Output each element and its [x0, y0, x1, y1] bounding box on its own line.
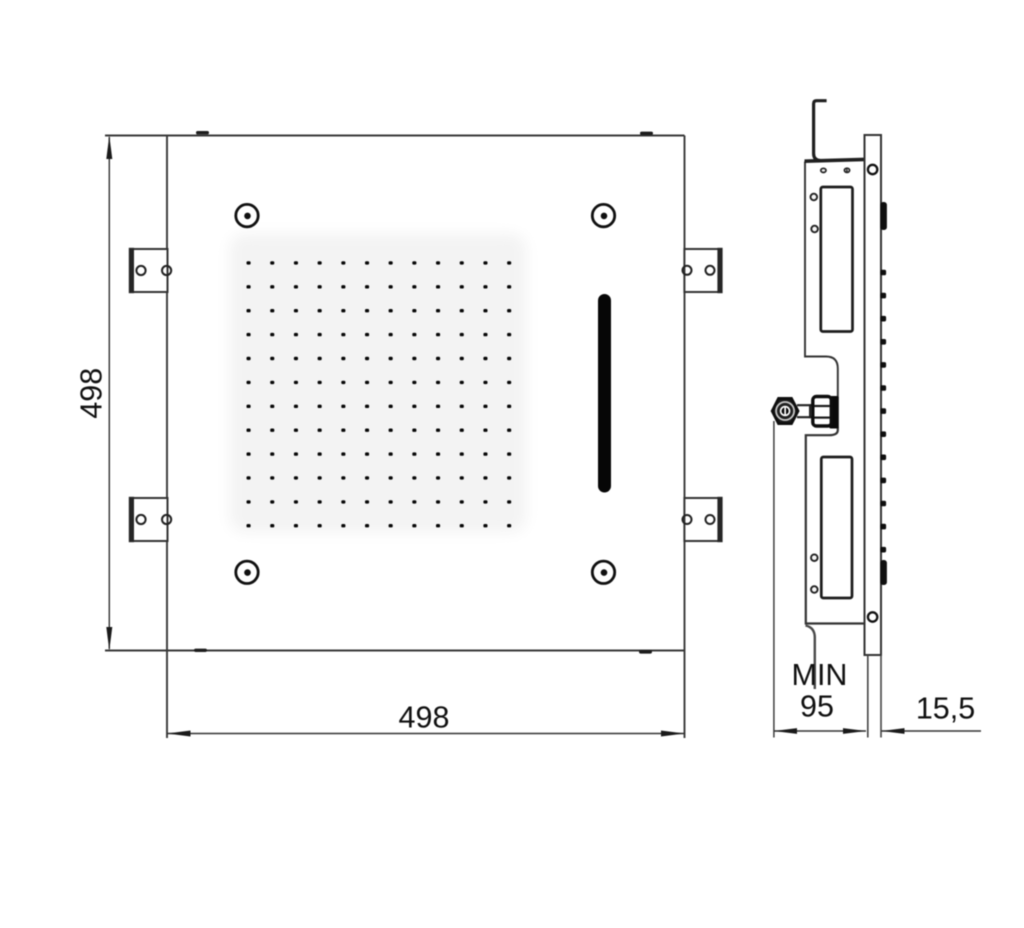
svg-text:498: 498: [399, 701, 450, 735]
svg-text:15,5: 15,5: [916, 692, 975, 726]
svg-text:MIN: MIN: [792, 658, 848, 692]
svg-text:95: 95: [800, 690, 834, 724]
svg-text:498: 498: [75, 368, 109, 419]
